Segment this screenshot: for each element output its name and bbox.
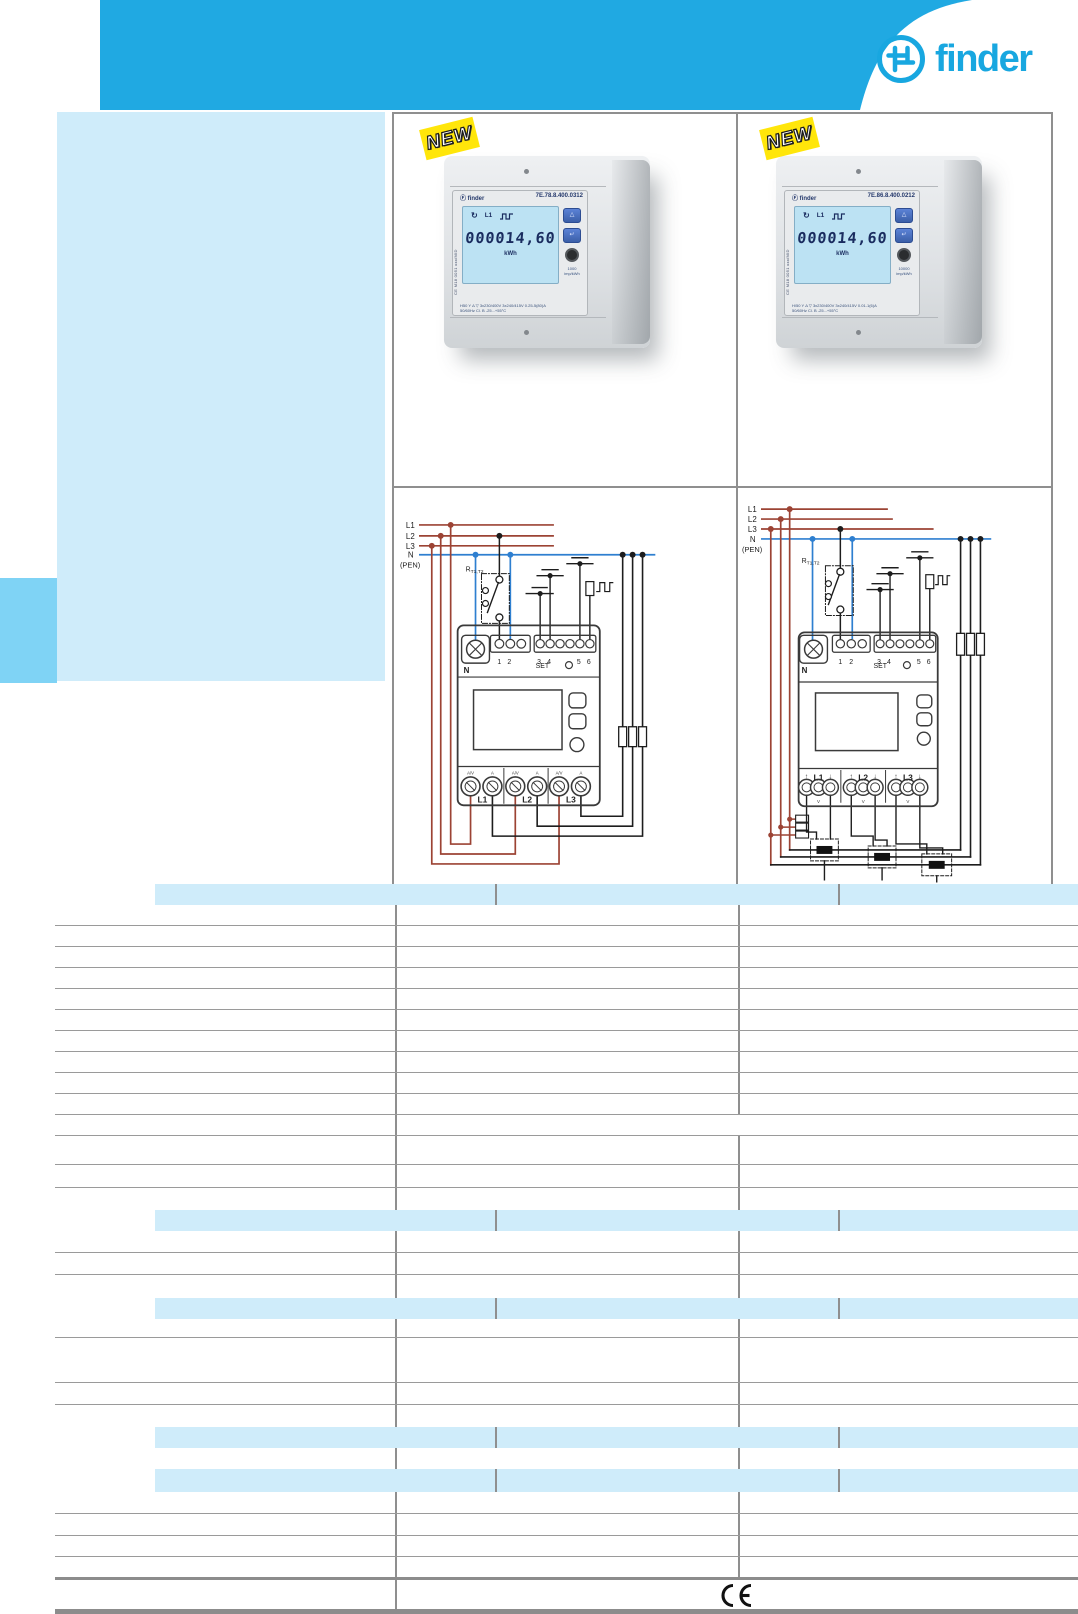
meter-side	[612, 160, 650, 344]
lcd-unit: kWh	[463, 251, 558, 257]
lcd-phase: L1	[817, 212, 825, 219]
svg-text:↓: ↓	[918, 773, 921, 780]
svg-text:↑: ↑	[850, 773, 853, 780]
svg-text:N: N	[802, 666, 808, 675]
finder-logo-icon	[874, 32, 928, 86]
section-side-tab	[0, 578, 57, 683]
svg-text:↓: ↓	[873, 773, 876, 780]
svg-text:2: 2	[507, 659, 511, 666]
table-section-band	[155, 1210, 1078, 1231]
table-row	[55, 1492, 1078, 1514]
table-section-band	[155, 1427, 1078, 1448]
lcd-display: ↻ L1 000014,60 kWh	[794, 206, 891, 284]
svg-text:N: N	[408, 551, 414, 560]
table-row	[55, 1319, 1078, 1338]
svg-text:5: 5	[577, 659, 581, 666]
table-row	[55, 947, 1078, 968]
svg-text:2: 2	[849, 659, 853, 666]
table-row	[55, 1136, 1078, 1165]
table-row	[55, 1253, 1078, 1275]
svg-text:A/V: A/V	[556, 770, 563, 775]
pulse-rate: 1000imp/kWh	[564, 267, 580, 276]
table-row	[55, 1073, 1078, 1094]
table-row	[55, 1094, 1078, 1115]
table-row	[55, 1188, 1078, 1210]
svg-text:L1: L1	[406, 521, 415, 530]
table-row	[55, 1010, 1078, 1031]
square-wave-icon	[831, 212, 847, 220]
svg-text:↑: ↑	[805, 773, 808, 780]
product-cell-7e78: NEW Ⓕ finder 7E.78.8.400.0312 CE M18 005…	[394, 114, 735, 485]
lcd-unit: kWh	[795, 251, 890, 257]
svg-text:N: N	[464, 666, 470, 675]
svg-text:4: 4	[887, 659, 891, 666]
table-row	[55, 1275, 1078, 1298]
table-row	[55, 1338, 1078, 1383]
meter-up-button: △	[895, 208, 913, 223]
lcd-display: ↻ L1 000014,60 kWh	[462, 206, 559, 284]
table-row	[55, 1115, 1078, 1136]
table-row	[55, 1405, 1078, 1427]
svg-text:A: A	[579, 770, 582, 775]
svg-text:L3: L3	[748, 525, 757, 534]
svg-text:L2: L2	[406, 532, 415, 541]
description-panel	[57, 112, 385, 681]
meter-ratings: H50 Y Δ ▽ 3x230/400V 3x240/415V 0.25-5(8…	[460, 303, 584, 313]
svg-text:(PEN): (PEN)	[400, 561, 421, 570]
svg-text:SET: SET	[874, 663, 888, 670]
lcd-phase: L1	[485, 212, 493, 219]
table-row	[55, 968, 1078, 989]
table-row	[55, 905, 1078, 926]
svg-text:V: V	[906, 799, 909, 804]
svg-text:A: A	[491, 770, 494, 775]
meter-model: 7E.78.8.400.0312	[536, 193, 583, 202]
table-row	[55, 1536, 1078, 1557]
table-section-band	[155, 1298, 1078, 1319]
current-transformers	[811, 839, 952, 882]
pulse-rate: 10000imp/kWh	[896, 267, 912, 276]
table-row	[55, 1231, 1078, 1253]
svg-text:5: 5	[917, 659, 921, 666]
svg-text:A/V: A/V	[467, 770, 474, 775]
table-row	[55, 1383, 1078, 1405]
svg-text:L2: L2	[522, 794, 532, 804]
product-cell-7e86: NEW Ⓕ finder 7E.86.8.400.0212 CE M18 005…	[738, 114, 1050, 485]
svg-text:L2: L2	[748, 515, 757, 524]
table-ce-row	[55, 1577, 1078, 1609]
meter-screw	[856, 330, 861, 335]
meter-enter-button: ↵	[895, 228, 913, 243]
table-row	[55, 1165, 1078, 1188]
table-row	[55, 1052, 1078, 1073]
svg-text:1: 1	[838, 659, 842, 666]
table-section-band	[155, 1469, 1078, 1492]
svg-text:L1: L1	[748, 505, 757, 514]
svg-text:SET: SET	[536, 663, 550, 670]
table-row	[55, 926, 1078, 947]
svg-text:(PEN): (PEN)	[742, 545, 763, 554]
rotate-icon: ↻	[803, 211, 810, 220]
svg-text:A: A	[536, 770, 539, 775]
meter-screw	[524, 169, 529, 174]
wiring-diagram-ct: L1 L2 L3 N (PEN) RT1,T2 1 2 3 4 5 6 SET …	[738, 487, 1051, 884]
svg-text:6: 6	[587, 659, 591, 666]
svg-text:V: V	[817, 799, 820, 804]
meter-up-button: △	[563, 208, 581, 223]
wiring-diagram-direct: L1 L2 L3 N (PEN) RT1,T2 1 2 3 4 5 6 SET …	[394, 487, 737, 884]
meter-side	[944, 160, 982, 344]
svg-text:A/V: A/V	[512, 770, 519, 775]
table-row	[55, 1514, 1078, 1536]
svg-text:1: 1	[497, 659, 501, 666]
svg-text:6: 6	[927, 659, 931, 666]
meter-enter-button: ↵	[563, 228, 581, 243]
meter-screw	[524, 330, 529, 335]
meter-cert-text: CE M18 0051 xxx/MID	[453, 209, 460, 295]
meter-ratings: H/50 Y Δ ▽ 3x230/400V 3x240/415V 0.01-1(…	[792, 303, 916, 313]
new-badge: NEW	[759, 117, 820, 160]
svg-text:L1: L1	[478, 794, 488, 804]
energy-meter-photo: Ⓕ finder 7E.78.8.400.0312 CE M18 0051 xx…	[444, 156, 650, 348]
rotate-icon: ↻	[471, 211, 478, 220]
datasheet-page: finder NEW Ⓕ finder 7E.78.8.400.0312 CE …	[0, 0, 1078, 1614]
energy-meter-photo: Ⓕ finder 7E.86.8.400.0212 CE M18 0051 xx…	[776, 156, 982, 348]
svg-text:L1: L1	[814, 772, 824, 782]
table-bottom-bar	[55, 1609, 1078, 1614]
svg-text:↑: ↑	[894, 773, 897, 780]
table-row	[55, 1557, 1078, 1577]
spec-table	[55, 884, 1078, 1614]
svg-text:L3: L3	[566, 794, 576, 804]
relay-label: RT1,T2	[802, 558, 820, 566]
new-badge: NEW	[419, 117, 480, 160]
lcd-value: 000014,60	[794, 229, 891, 247]
svg-text:L3: L3	[903, 772, 913, 782]
svg-text:L2: L2	[858, 772, 868, 782]
meter-brand: Ⓕ finder	[460, 193, 484, 202]
meter-face: Ⓕ finder 7E.86.8.400.0212 CE M18 0051 xx…	[784, 190, 920, 316]
table-row	[55, 989, 1078, 1010]
meter-brand: Ⓕ finder	[792, 193, 816, 202]
table-row	[55, 1031, 1078, 1052]
meter-face: Ⓕ finder 7E.78.8.400.0312 CE M18 0051 xx…	[452, 190, 588, 316]
meter-screw	[856, 169, 861, 174]
table-section-band	[155, 884, 1078, 905]
svg-text:V: V	[862, 799, 865, 804]
finder-logo: finder	[874, 32, 1032, 86]
meter-model: 7E.86.8.400.0212	[868, 193, 915, 202]
svg-text:↓: ↓	[829, 773, 832, 780]
grid-line	[1051, 112, 1053, 884]
meter-round-button	[565, 248, 579, 262]
lcd-value: 000014,60	[462, 229, 559, 247]
svg-text:N: N	[750, 535, 756, 544]
brand-name: finder	[935, 40, 1032, 78]
meter-round-button	[897, 248, 911, 262]
svg-text:L3: L3	[406, 542, 415, 551]
table-row	[55, 1448, 1078, 1469]
meter-cert-text: CE M18 0051 xxx/MID	[785, 209, 792, 295]
square-wave-icon	[499, 212, 515, 220]
